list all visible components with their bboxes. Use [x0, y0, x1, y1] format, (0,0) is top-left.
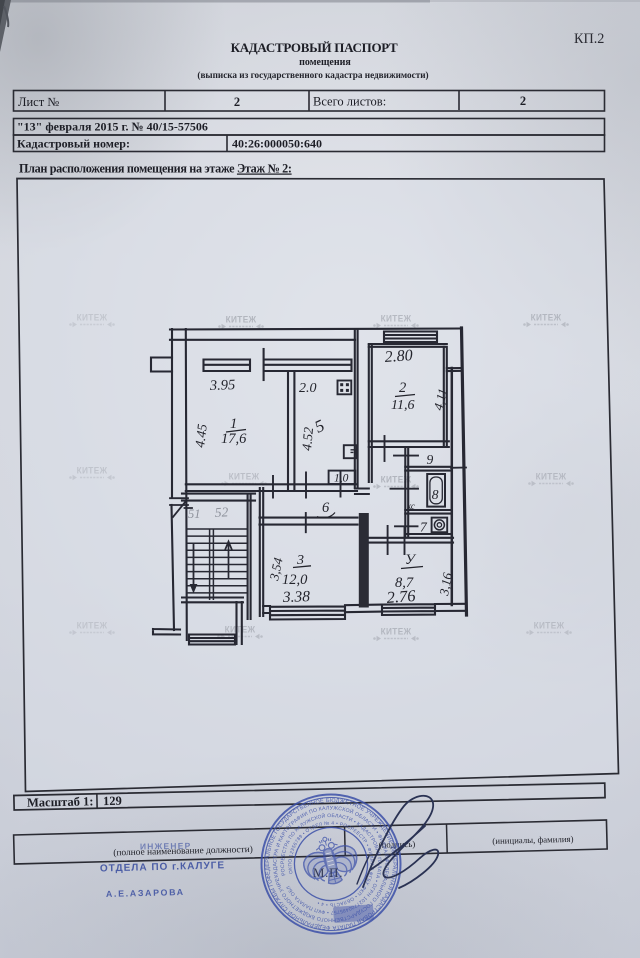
svg-text:ОТДЕЛА ПО г.КАЛУГЕ: ОТДЕЛА ПО г.КАЛУГЕ — [100, 860, 225, 874]
svg-text:Всего листов:: Всего листов: — [313, 95, 386, 109]
svg-text:2: 2 — [234, 95, 240, 109]
svg-text:2: 2 — [399, 380, 406, 396]
svg-text:17,6: 17,6 — [221, 431, 247, 447]
svg-text:А.Е.АЗАРОВА: А.Е.АЗАРОВА — [106, 887, 185, 899]
svg-text:2.76: 2.76 — [386, 586, 417, 607]
svg-text:6: 6 — [322, 500, 330, 516]
svg-text:(выписка из государственного к: (выписка из государственного кадастра не… — [197, 70, 428, 80]
svg-text:(инициалы, фамилия): (инициалы, фамилия) — [492, 834, 573, 846]
svg-text:9: 9 — [427, 452, 434, 467]
svg-text:3.38: 3.38 — [282, 588, 311, 606]
svg-text:8: 8 — [432, 487, 439, 502]
svg-text:1,0: 1,0 — [334, 473, 349, 485]
svg-text:3.95: 3.95 — [209, 377, 236, 394]
svg-text:51: 51 — [188, 507, 201, 521]
svg-text:"13" февраля 2015 г. № 40/15-5: "13" февраля 2015 г. № 40/15-57506 — [17, 120, 208, 134]
svg-text:11,6: 11,6 — [391, 398, 414, 413]
svg-text:Лист №: Лист № — [18, 95, 59, 109]
svg-text:кс: кс — [407, 501, 415, 511]
svg-text:помещения: помещения — [299, 57, 351, 68]
svg-text:ИНЖЕНЕР: ИНЖЕНЕР — [140, 841, 192, 852]
svg-text:1: 1 — [230, 416, 237, 432]
svg-text:2: 2 — [520, 94, 526, 108]
svg-text:129: 129 — [103, 794, 122, 808]
svg-text:КП.2: КП.2 — [574, 31, 604, 47]
svg-text:2.0: 2.0 — [299, 381, 317, 396]
svg-text:План расположения помещения на: План расположения помещения на этаже Эта… — [19, 162, 292, 176]
svg-text:Кадастровый номер:: Кадастровый номер: — [17, 137, 130, 151]
svg-text:12,0: 12,0 — [282, 572, 308, 588]
svg-text:52: 52 — [214, 504, 229, 520]
svg-text:КАДАСТРОВЫЙ ПАСПОРТ: КАДАСТРОВЫЙ ПАСПОРТ — [231, 40, 398, 55]
svg-text:4.45: 4.45 — [192, 423, 210, 449]
svg-text:4.52: 4.52 — [299, 426, 316, 451]
svg-text:3: 3 — [296, 553, 304, 568]
svg-text:М.П.: М.П. — [313, 866, 343, 880]
svg-text:Масштаб 1:: Масштаб 1: — [27, 794, 94, 809]
svg-text:40:26:000050:640: 40:26:000050:640 — [232, 137, 322, 151]
svg-text:2.80: 2.80 — [384, 347, 413, 366]
